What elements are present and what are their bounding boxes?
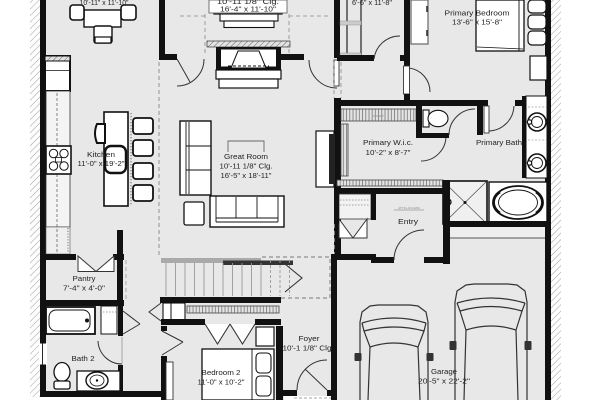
- svg-text:13'-6" x 15'-8": 13'-6" x 15'-8": [452, 18, 502, 27]
- svg-text:20'-5" x 22'-2": 20'-5" x 22'-2": [418, 377, 470, 386]
- svg-text:Great Room: Great Room: [224, 152, 268, 161]
- svg-text:11'-0" x 10'-2": 11'-0" x 10'-2": [198, 378, 245, 387]
- svg-text:16'-5" x 18'-11": 16'-5" x 18'-11": [221, 171, 272, 180]
- svg-text:ATTIC ACCESS: ATTIC ACCESS: [398, 206, 419, 210]
- svg-text:Entry: Entry: [398, 217, 418, 226]
- svg-text:Kitchen: Kitchen: [87, 150, 115, 159]
- svg-text:10'-1 1/8" Clg: 10'-1 1/8" Clg: [283, 344, 332, 353]
- svg-text:11'-0" x 19'-2": 11'-0" x 19'-2": [78, 159, 125, 168]
- svg-text:6'-6" x 11'-8": 6'-6" x 11'-8": [352, 0, 392, 7]
- svg-text:Primary Bedroom: Primary Bedroom: [445, 9, 510, 18]
- svg-text:Garage: Garage: [431, 367, 457, 376]
- svg-text:Primary W.i.c.: Primary W.i.c.: [363, 138, 413, 147]
- svg-text:Bedroom 2: Bedroom 2: [202, 368, 241, 377]
- svg-text:Pantry: Pantry: [73, 274, 96, 283]
- svg-text:10'-11" x 11'-10": 10'-11" x 11'-10": [80, 0, 129, 7]
- svg-text:Primary Bath: Primary Bath: [476, 138, 522, 147]
- svg-text:CLOSET: CLOSET: [372, 114, 384, 118]
- svg-text:10'-2" x 8'-7": 10'-2" x 8'-7": [366, 148, 411, 157]
- svg-text:7'-4" x 4'-0": 7'-4" x 4'-0": [63, 284, 105, 293]
- svg-text:Foyer: Foyer: [299, 334, 321, 343]
- svg-text:Bath 2: Bath 2: [72, 354, 95, 363]
- svg-text:10'-11 1/8" Clg.: 10'-11 1/8" Clg.: [220, 162, 273, 171]
- svg-text:16'-4" x 11'-10": 16'-4" x 11'-10": [220, 5, 276, 14]
